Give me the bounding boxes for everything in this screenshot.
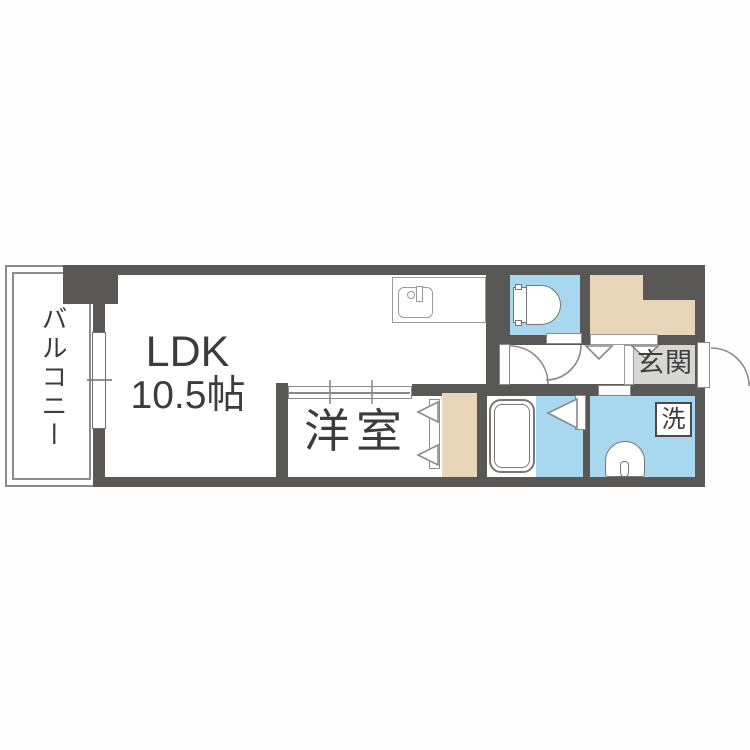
entrance-door-leaf: [697, 342, 710, 388]
wall-top: [63, 265, 705, 275]
floor-plan: 洗 バルコニー LDK 10.5帖 洋室 玄関: [0, 0, 750, 750]
hall-closet-right: [643, 300, 695, 335]
western-closet-door-frame: [429, 399, 440, 469]
western-room-closet: [442, 393, 477, 477]
wall-ldk-hall: [486, 345, 499, 387]
wall-closet-bath: [477, 394, 487, 477]
wall-pillar-topleft: [63, 265, 118, 304]
western-room-label: 洋室: [292, 408, 420, 454]
toilet-door-leaf: [546, 333, 582, 344]
wall-toilet-closet: [580, 275, 590, 335]
toilet-tab-bottom: [515, 320, 522, 326]
toilet-tab-top: [515, 284, 522, 290]
bathtub-icon: [489, 399, 535, 473]
ldk-label: LDK: [105, 331, 270, 374]
ldk-hall-door-leaf: [499, 344, 510, 385]
ldk-size-label: 10.5帖: [98, 376, 278, 415]
hall-closet-left: [590, 275, 643, 335]
entrance-step-strip: [624, 345, 634, 385]
washbasin-faucet-icon: [620, 461, 629, 477]
entrance-door-swing-icon: [711, 348, 749, 386]
bath-door-frame: [575, 395, 586, 430]
balcony-label: バルコニー: [40, 305, 66, 465]
wall-closet-notch: [643, 275, 695, 300]
wall-bottom: [93, 477, 705, 487]
closet-opening: [590, 334, 658, 345]
washroom-door-leaf: [598, 385, 631, 396]
laundry-label: 洗: [662, 408, 686, 432]
entrance-label: 玄関: [637, 350, 697, 377]
kitchen-faucet-icon: [407, 291, 415, 299]
laundry-box: 洗: [655, 402, 692, 437]
kitchen-tap-icon: [416, 286, 423, 302]
sliding-door-icon: [288, 386, 412, 399]
wall-ldk-toilet: [486, 275, 510, 335]
